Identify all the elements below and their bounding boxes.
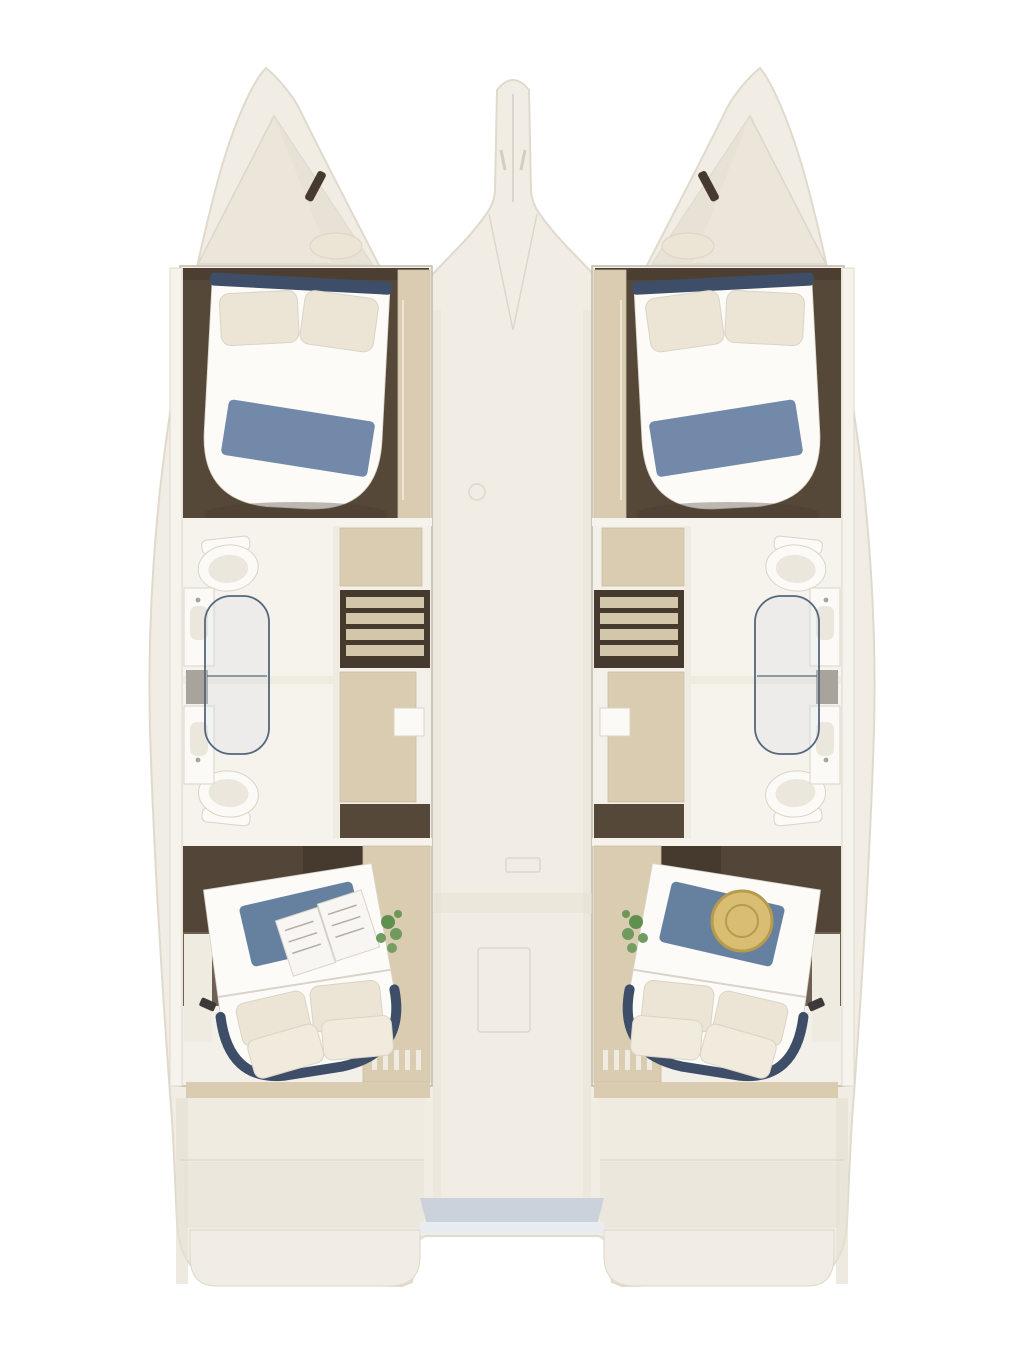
cockpit-step-light (420, 1222, 604, 1234)
render-canvas (0, 0, 1024, 1365)
straw-hat (712, 891, 772, 951)
plant-leaf (376, 933, 386, 943)
catamaran-floorplan (0, 0, 1024, 1365)
deck-wall-shadow-starboard (583, 310, 591, 1230)
deck-shadow-band (434, 893, 592, 913)
hat-crown (726, 905, 758, 937)
plant-leaf (390, 928, 402, 940)
starboard-hull (592, 116, 854, 1286)
cockpit (420, 1198, 604, 1234)
plant-leaf (394, 910, 402, 918)
plant-leaf (627, 943, 637, 953)
plant-leaf (622, 910, 630, 918)
plant-leaf (638, 933, 648, 943)
plant-leaf (387, 943, 397, 953)
plant-leaf (381, 915, 395, 929)
port-hull (170, 116, 432, 1286)
plant-leaf (629, 915, 643, 929)
plant-leaf (622, 928, 634, 940)
deck-wall-shadow-port (433, 310, 441, 1230)
cockpit-step-blue (420, 1198, 604, 1222)
